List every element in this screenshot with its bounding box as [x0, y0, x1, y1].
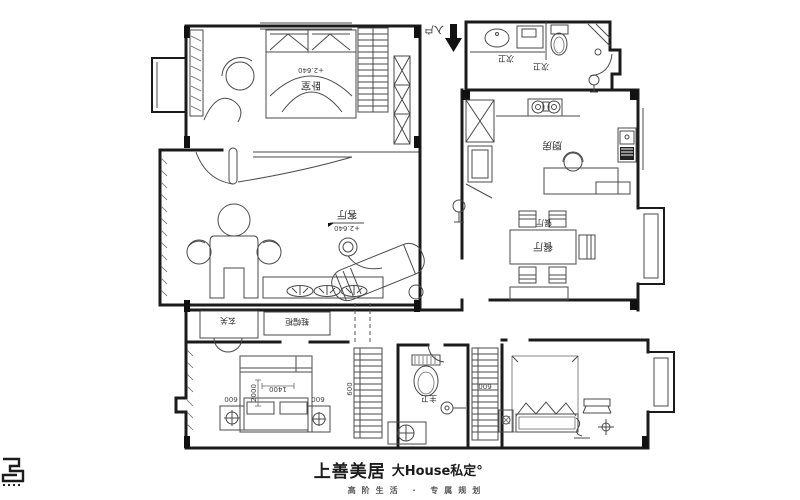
- master-bathroom: 主卫: [388, 345, 466, 444]
- staircase-top: [358, 28, 410, 144]
- entry-label: 入户: [424, 23, 444, 36]
- brand-name: 上善美居: [314, 457, 386, 482]
- brand-product: 大House私定°: [392, 460, 483, 479]
- dining-room: 餐厅 餐厅: [510, 211, 595, 300]
- entry-arrow-icon: [445, 24, 462, 52]
- living-label: 客厅: [337, 208, 357, 221]
- dining-label-small: 餐厅: [536, 218, 552, 227]
- bedroom-top: +2.640 卧室: [190, 30, 356, 122]
- stair-width-dim: 600: [346, 382, 354, 395]
- bath-top-label-left: 次卫: [498, 54, 514, 64]
- bed-length-dim: 2000: [250, 384, 258, 402]
- floor-plan-drawing: 入户 +2.640 卧室: [0, 0, 800, 500]
- kitchen-label: 厨房: [542, 139, 562, 152]
- bathroom-top: 次卫 次卫: [470, 22, 612, 92]
- nightstand-right-dim: 600: [311, 395, 324, 403]
- staircase-bottom: 600: [346, 348, 382, 438]
- living-room: +2.640 客厅: [187, 148, 428, 305]
- bedroom-top-label: 卧室: [301, 79, 321, 92]
- staircase-right: 600: [472, 348, 498, 440]
- footer-logo: 上善美居 大House私定° 高阶生活 · 专属规划: [0, 457, 800, 496]
- floor-plan-page: 入户 +2.640 卧室: [0, 0, 800, 500]
- dining-label: 餐厅: [533, 240, 553, 253]
- entry-marker: 入户: [424, 23, 462, 52]
- bedroom-top-elevation: +2.640: [298, 66, 324, 74]
- stair2-width-dim: 600: [478, 382, 491, 390]
- master-bath-label: 主卫: [421, 394, 437, 404]
- kitchen: 厨房: [466, 99, 636, 198]
- brand-mark-icon: [0, 457, 26, 487]
- brand-tagline: 高阶生活 · 专属规划: [348, 485, 487, 496]
- bedroom-bottom-left: 1400 2000 600 600: [220, 356, 330, 432]
- bed-width-dim: 1400: [269, 385, 287, 393]
- nightstand-left-dim: 600: [224, 395, 237, 403]
- bath-top-label-right: 次卫: [533, 62, 549, 72]
- living-elevation: +2.640: [334, 224, 360, 232]
- foyer-label: 玄关: [220, 316, 236, 326]
- shoe-cabinet-label: 鞋帽柜: [285, 317, 309, 327]
- wall-hatch: [161, 158, 193, 430]
- bedroom-bottom-right: [499, 356, 614, 438]
